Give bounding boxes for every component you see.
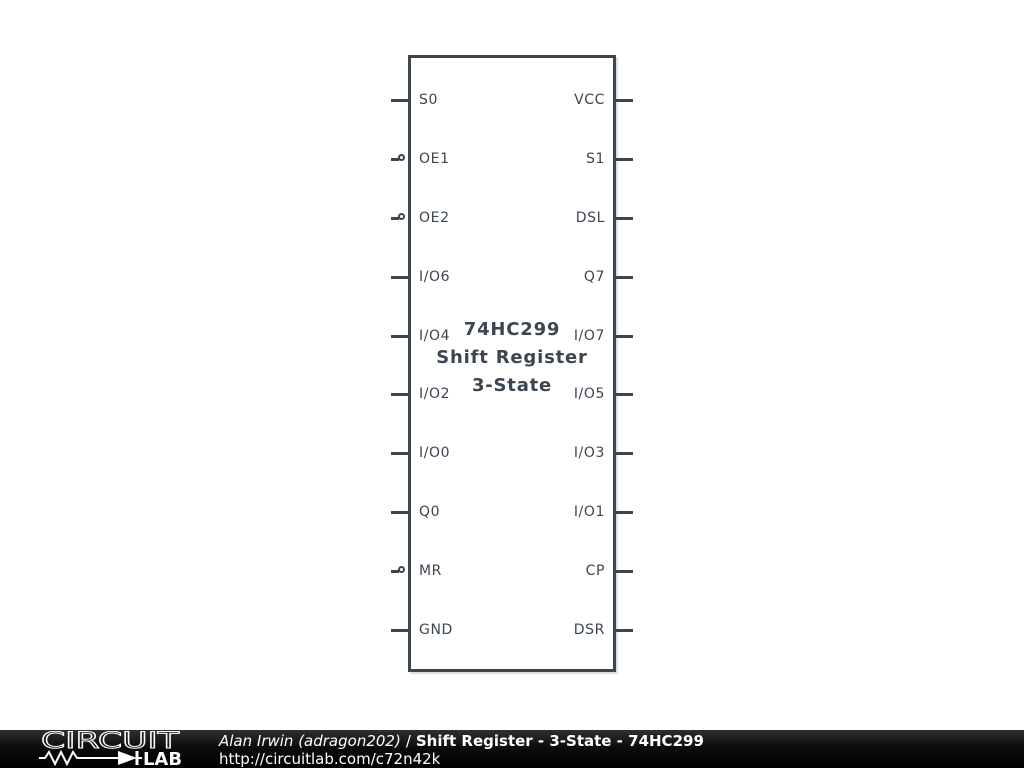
pin-label-S0: S0 bbox=[419, 92, 438, 108]
attribution-line: Alan Irwin (adragon202)/Shift Register -… bbox=[219, 732, 704, 750]
inversion-bubble-OE2 bbox=[398, 213, 405, 220]
pin-label-S1: S1 bbox=[586, 151, 605, 167]
pin-stub-Q7[interactable] bbox=[614, 276, 633, 279]
pin-stub-I/O3[interactable] bbox=[614, 452, 633, 455]
pin-stub-CP[interactable] bbox=[614, 570, 633, 573]
pin-label-I/O5: I/O5 bbox=[574, 386, 605, 402]
pin-stub-DSR[interactable] bbox=[614, 629, 633, 632]
footer-credit: Alan Irwin (adragon202)/Shift Register -… bbox=[219, 732, 704, 768]
pin-label-I/O3: I/O3 bbox=[574, 445, 605, 461]
schematic-url: http://circuitlab.com/c72n42k bbox=[219, 750, 704, 768]
pin-stub-VCC[interactable] bbox=[614, 99, 633, 102]
schematic-title: Shift Register - 3-State - 74HC299 bbox=[416, 732, 704, 750]
pin-label-CP: CP bbox=[586, 563, 605, 579]
pin-stub-I/O4[interactable] bbox=[391, 335, 409, 338]
pin-label-I/O7: I/O7 bbox=[574, 328, 605, 344]
pin-stub-I/O1[interactable] bbox=[614, 511, 633, 514]
logo-word-lab: LAB bbox=[143, 749, 182, 767]
pin-label-I/O2: I/O2 bbox=[419, 386, 450, 402]
pin-label-Q7: Q7 bbox=[584, 269, 605, 285]
pin-stub-Q0[interactable] bbox=[391, 511, 409, 514]
pin-label-I/O6: I/O6 bbox=[419, 269, 450, 285]
pin-label-I/O4: I/O4 bbox=[419, 328, 450, 344]
inversion-bubble-OE1 bbox=[398, 154, 405, 161]
pin-stub-I/O7[interactable] bbox=[614, 335, 633, 338]
pin-label-VCC: VCC bbox=[574, 92, 605, 108]
author-name: Alan Irwin (adragon202) bbox=[219, 732, 401, 750]
pin-stub-DSL[interactable] bbox=[614, 217, 633, 220]
pin-label-OE2: OE2 bbox=[419, 210, 450, 226]
pin-label-MR: MR bbox=[419, 563, 442, 579]
pin-stub-I/O2[interactable] bbox=[391, 393, 409, 396]
pin-label-DSR: DSR bbox=[574, 622, 605, 638]
attribution-separator: / bbox=[406, 732, 411, 750]
pin-stub-I/O5[interactable] bbox=[614, 393, 633, 396]
pin-label-Q0: Q0 bbox=[419, 504, 440, 520]
chip-description-line1: Shift Register bbox=[408, 344, 616, 372]
pin-label-DSL: DSL bbox=[576, 210, 605, 226]
pin-stub-S1[interactable] bbox=[614, 158, 633, 161]
pin-stub-I/O0[interactable] bbox=[391, 452, 409, 455]
pin-stub-I/O6[interactable] bbox=[391, 276, 409, 279]
pin-label-GND: GND bbox=[419, 622, 453, 638]
circuitlab-logo: CIRCUIT LAB bbox=[38, 731, 183, 767]
pin-label-OE1: OE1 bbox=[419, 151, 450, 167]
pin-label-I/O1: I/O1 bbox=[574, 504, 605, 520]
pin-stub-GND[interactable] bbox=[391, 629, 409, 632]
inversion-bubble-MR bbox=[398, 566, 405, 573]
footer-bar: CIRCUIT LAB Alan Irwin (adragon202)/Shif… bbox=[0, 730, 1024, 768]
pin-stub-S0[interactable] bbox=[391, 99, 409, 102]
pin-label-I/O0: I/O0 bbox=[419, 445, 450, 461]
